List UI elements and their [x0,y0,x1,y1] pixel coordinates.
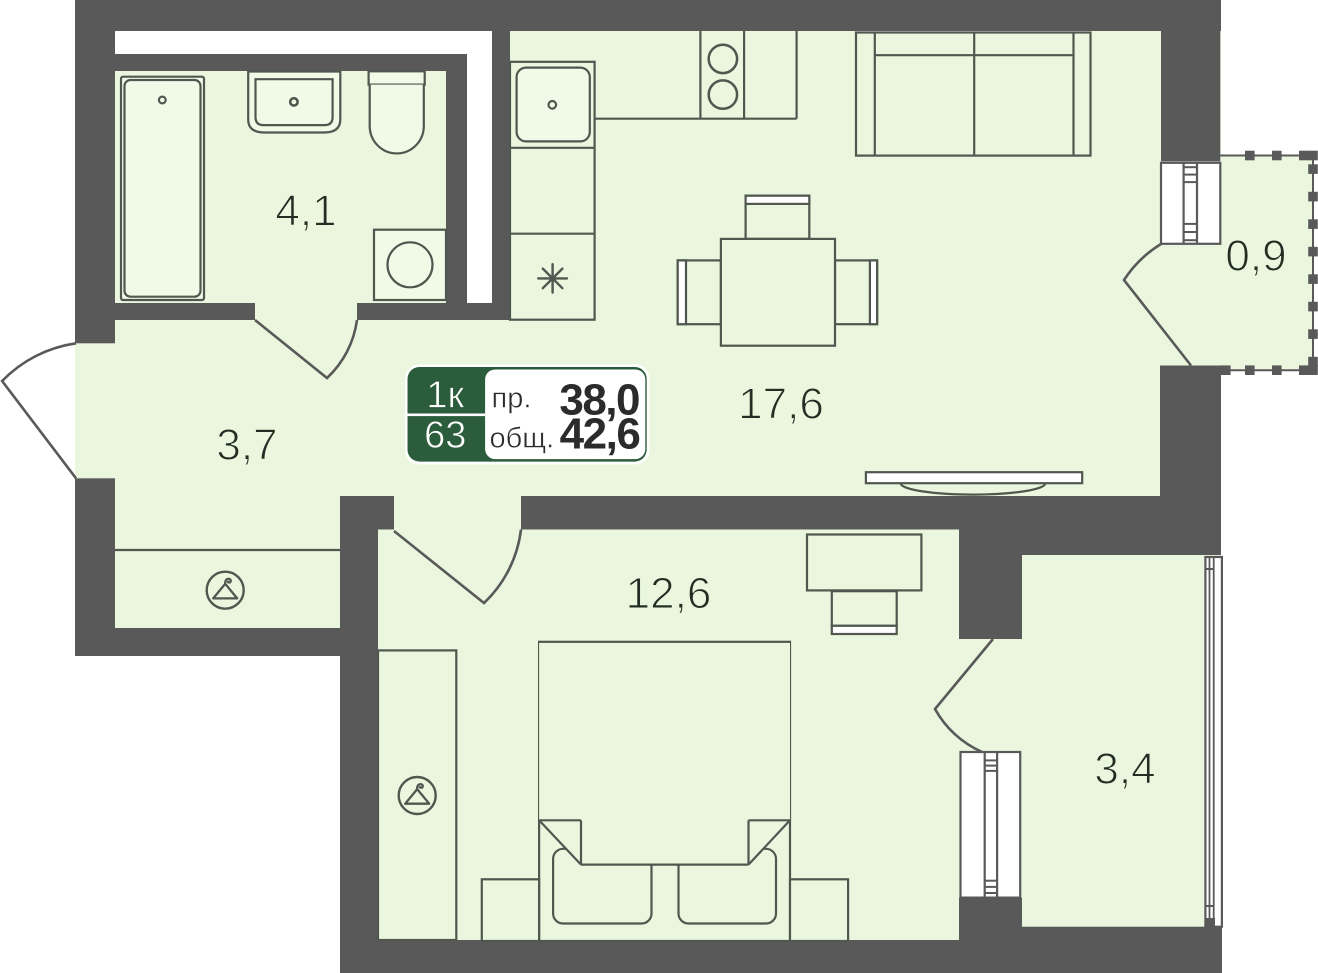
svg-text:63: 63 [424,415,466,457]
svg-text:3,4: 3,4 [1094,745,1155,794]
svg-text:0,9: 0,9 [1225,232,1286,281]
svg-text:3,7: 3,7 [216,421,277,470]
svg-text:12,6: 12,6 [626,569,712,618]
svg-text:1к: 1к [426,374,464,416]
svg-text:общ.: общ. [490,423,555,455]
svg-text:42,6: 42,6 [560,410,640,459]
svg-text:17,6: 17,6 [738,379,824,428]
svg-text:пр.: пр. [492,382,532,414]
svg-text:4,1: 4,1 [275,187,336,236]
